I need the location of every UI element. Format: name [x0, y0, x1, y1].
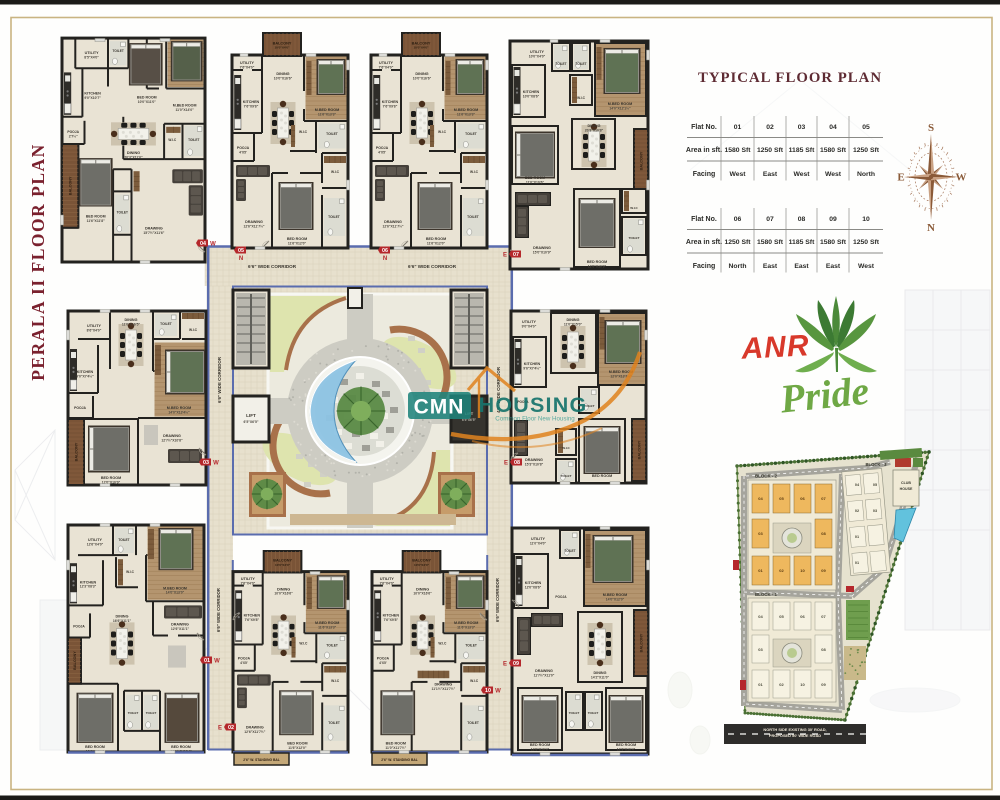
svg-text:06: 06 — [800, 614, 805, 619]
svg-text:TOILET: TOILET — [465, 132, 477, 136]
svg-text:01: 01 — [855, 535, 859, 539]
svg-text:M.BED ROOM: M.BED ROOM — [315, 108, 339, 112]
svg-text:05: 05 — [779, 614, 784, 619]
svg-text:9'0"X4'0": 9'0"X4'0" — [522, 324, 537, 328]
svg-text:BALCONY: BALCONY — [73, 651, 77, 670]
svg-text:03: 03 — [758, 647, 763, 652]
svg-text:W: W — [495, 689, 501, 695]
svg-text:12'6"X11'7½": 12'6"X11'7½" — [243, 224, 264, 228]
svg-text:UTILITY: UTILITY — [241, 577, 255, 581]
svg-text:03: 03 — [798, 124, 806, 131]
svg-text:9'6"X7'4½": 9'6"X7'4½" — [523, 366, 541, 370]
svg-text:TOILET: TOILET — [561, 474, 572, 478]
svg-text:TOILET: TOILET — [629, 236, 640, 240]
svg-text:BED ROOM: BED ROOM — [426, 237, 446, 241]
svg-text:BALCONY: BALCONY — [640, 633, 644, 652]
svg-text:6’6" WIDE CORRIDOR: 6’6" WIDE CORRIDOR — [408, 264, 457, 269]
svg-text:14'0"X13'0": 14'0"X13'0" — [166, 591, 185, 595]
svg-text:02: 02 — [855, 509, 859, 513]
svg-text:PERALA II FLOOR PLAN: PERALA II FLOOR PLAN — [28, 143, 48, 381]
svg-text:03: 03 — [203, 460, 209, 466]
svg-text:TOILET: TOILET — [467, 721, 479, 725]
svg-text:BLOCK - 1: BLOCK - 1 — [755, 592, 778, 597]
svg-text:4'X5': 4'X5' — [379, 661, 387, 665]
svg-text:11'0"X16'5": 11'0"X16'5" — [122, 322, 141, 326]
svg-text:09: 09 — [513, 661, 519, 667]
svg-text:6’6" WIDE CORRIDOR: 6’6" WIDE CORRIDOR — [216, 588, 221, 632]
svg-text:DRAWING: DRAWING — [163, 434, 181, 438]
svg-text:E: E — [897, 172, 904, 184]
svg-text:E: E — [504, 461, 508, 467]
svg-text:W.I.C: W.I.C — [470, 170, 479, 174]
svg-text:Facing: Facing — [693, 263, 716, 270]
svg-text:TOILET: TOILET — [113, 49, 124, 53]
svg-text:4'X5': 4'X5' — [240, 661, 248, 665]
svg-text:14'0"X12'0": 14'0"X12'0" — [606, 597, 625, 601]
svg-text:12'3"X10'4": 12'3"X10'4" — [617, 747, 636, 751]
svg-text:BLOCK - 2: BLOCK - 2 — [755, 474, 778, 479]
svg-text:06: 06 — [734, 216, 742, 223]
svg-text:01: 01 — [734, 124, 742, 131]
svg-text:1580 Sft: 1580 Sft — [724, 147, 751, 154]
svg-text:TOILET: TOILET — [575, 62, 586, 66]
svg-text:DINING: DINING — [127, 151, 140, 155]
svg-text:BED ROOM: BED ROOM — [587, 260, 607, 264]
svg-text:M.BED ROOM: M.BED ROOM — [173, 104, 197, 108]
svg-text:11'6"X13'3": 11'6"X13'3" — [318, 112, 337, 116]
svg-text:6’6" WIDE CORRIDOR: 6’6" WIDE CORRIDOR — [495, 578, 500, 622]
svg-text:UTILITY: UTILITY — [87, 324, 101, 328]
svg-text:04: 04 — [758, 614, 763, 619]
svg-text:BED ROOM: BED ROOM — [287, 237, 307, 241]
svg-text:10'0"X16'6": 10'0"X16'6" — [413, 76, 432, 80]
svg-text:N: N — [927, 222, 935, 234]
svg-text:10'0"X8'6": 10'0"X8'6" — [523, 94, 540, 98]
svg-text:1250 Sft: 1250 Sft — [853, 239, 880, 246]
svg-text:POOJA: POOJA — [376, 146, 389, 150]
svg-text:TOILET: TOILET — [467, 215, 479, 219]
svg-text:KITCHEN: KITCHEN — [77, 370, 94, 374]
svg-text:KITCHEN: KITCHEN — [383, 613, 400, 617]
svg-text:E: E — [218, 726, 222, 732]
svg-text:06: 06 — [800, 496, 805, 501]
svg-text:10'0"X4'0": 10'0"X4'0" — [414, 563, 430, 567]
svg-text:DINING: DINING — [594, 671, 607, 675]
svg-text:2’6" W. STANDING BAL: 2’6" W. STANDING BAL — [243, 758, 280, 762]
svg-text:KITCHEN: KITCHEN — [244, 613, 261, 617]
svg-text:12'7½"X10'8": 12'7½"X10'8" — [161, 438, 183, 442]
svg-text:20'3"X10'8": 20'3"X10'8" — [585, 128, 604, 132]
svg-text:W.I.C: W.I.C — [577, 96, 585, 100]
svg-text:UTILITY: UTILITY — [379, 61, 393, 65]
svg-text:DINING: DINING — [588, 124, 601, 128]
svg-text:09: 09 — [821, 682, 826, 687]
svg-text:KITCHEN: KITCHEN — [523, 90, 540, 94]
svg-text:DRAWING: DRAWING — [533, 246, 551, 250]
svg-text:UTILITY: UTILITY — [531, 537, 545, 541]
svg-text:TYPICAL FLOOR PLAN: TYPICAL FLOOR PLAN — [698, 70, 882, 86]
svg-text:W: W — [214, 659, 220, 665]
svg-text:DINING: DINING — [567, 318, 580, 322]
svg-text:W: W — [210, 242, 216, 248]
svg-text:12'6"X11'7½": 12'6"X11'7½" — [244, 730, 265, 734]
svg-text:07: 07 — [766, 216, 774, 223]
svg-text:06: 06 — [382, 248, 388, 254]
svg-text:TOILET: TOILET — [326, 643, 338, 647]
svg-text:BED ROOM: BED ROOM — [287, 742, 307, 746]
svg-text:02: 02 — [779, 568, 784, 573]
svg-text:1185 Sft: 1185 Sft — [789, 147, 815, 154]
svg-text:DINING: DINING — [116, 614, 129, 618]
svg-text:BED ROOM: BED ROOM — [386, 742, 406, 746]
svg-text:01: 01 — [758, 568, 763, 573]
svg-text:11'0"X10'6": 11'0"X10'6" — [526, 180, 545, 184]
svg-text:East: East — [794, 263, 809, 270]
svg-text:M.BED ROOM: M.BED ROOM — [603, 593, 627, 597]
svg-text:02: 02 — [766, 124, 774, 131]
svg-text:W.I.C: W.I.C — [126, 570, 134, 574]
svg-text:KITCHEN: KITCHEN — [524, 362, 541, 366]
svg-text:07: 07 — [513, 252, 519, 258]
svg-text:KITCHEN: KITCHEN — [382, 100, 399, 104]
svg-text:BED ROOM: BED ROOM — [616, 743, 636, 747]
svg-text:DINING: DINING — [416, 587, 429, 591]
svg-text:POOJA: POOJA — [67, 130, 79, 134]
svg-text:08: 08 — [514, 460, 520, 466]
svg-text:East: East — [763, 171, 778, 178]
svg-text:10'0"X4'0": 10'0"X4'0" — [275, 563, 291, 567]
svg-text:W.I.C: W.I.C — [189, 328, 198, 332]
svg-text:POOJA: POOJA — [238, 656, 251, 660]
svg-text:TOILET: TOILET — [146, 711, 157, 715]
svg-text:N: N — [239, 256, 243, 262]
svg-text:TOILET: TOILET — [328, 721, 340, 725]
svg-text:West: West — [793, 171, 810, 178]
svg-text:TOILET: TOILET — [188, 138, 199, 142]
svg-text:Flat No.: Flat No. — [691, 124, 717, 131]
svg-text:6’6" WIDE CORRIDOR: 6’6" WIDE CORRIDOR — [248, 264, 297, 269]
svg-text:12'0"X10'9": 12'0"X10'9" — [588, 264, 607, 268]
svg-text:BED ROOM: BED ROOM — [525, 176, 545, 180]
svg-text:14'0"X12'1½": 14'0"X12'1½" — [609, 106, 631, 110]
svg-text:DRAWING: DRAWING — [525, 458, 543, 462]
svg-text:04: 04 — [200, 241, 206, 247]
svg-text:08: 08 — [821, 647, 826, 652]
svg-text:DRAWING: DRAWING — [434, 683, 452, 687]
svg-text:West: West — [729, 171, 746, 178]
svg-text:UTILITY: UTILITY — [240, 61, 254, 65]
svg-text:2'7½": 2'7½" — [69, 134, 78, 138]
svg-text:01: 01 — [758, 682, 763, 687]
svg-text:BALCONY: BALCONY — [640, 151, 644, 170]
svg-text:TOILET: TOILET — [160, 322, 172, 326]
svg-text:TOILET: TOILET — [465, 643, 477, 647]
svg-text:DINING: DINING — [276, 72, 289, 76]
svg-text:W.I.C: W.I.C — [299, 642, 308, 646]
svg-text:UTILITY: UTILITY — [522, 320, 536, 324]
svg-text:BED ROOM: BED ROOM — [171, 745, 191, 749]
svg-text:1250 Sft: 1250 Sft — [757, 147, 784, 154]
svg-text:01: 01 — [855, 561, 859, 565]
svg-text:BALCONY: BALCONY — [75, 442, 79, 461]
svg-text:E: E — [503, 253, 507, 259]
svg-text:M.BED ROOM: M.BED ROOM — [315, 621, 339, 625]
svg-text:11'1½"X11'7½": 11'1½"X11'7½" — [432, 687, 456, 691]
svg-text:1185 Sft: 1185 Sft — [789, 239, 815, 246]
svg-text:10'0"X16'6": 10'0"X16'6" — [413, 592, 432, 596]
svg-text:05: 05 — [779, 496, 784, 501]
svg-text:DRAWING: DRAWING — [384, 220, 402, 224]
svg-text:W.I.C: W.I.C — [331, 170, 340, 174]
svg-text:12'6"X11'1": 12'6"X11'1" — [171, 627, 190, 631]
svg-text:BED ROOM: BED ROOM — [137, 96, 157, 100]
svg-text:11'6"X12'0": 11'6"X12'0" — [427, 241, 446, 245]
svg-text:BED ROOM: BED ROOM — [86, 215, 106, 219]
svg-text:6’6" WIDE CORRIDOR: 6’6" WIDE CORRIDOR — [217, 356, 222, 403]
svg-text:W.I.C: W.I.C — [168, 138, 176, 142]
svg-text:03: 03 — [873, 509, 877, 513]
svg-text:POOJA: POOJA — [377, 656, 390, 660]
svg-text:CMN: CMN — [414, 396, 465, 419]
svg-text:16'6"X11'1": 16'6"X11'1" — [113, 619, 132, 623]
svg-text:7'6"X9'8": 7'6"X9'8" — [383, 104, 398, 108]
svg-text:KITCHEN: KITCHEN — [84, 92, 101, 96]
svg-text:7'6"X4'0": 7'6"X4'0" — [241, 581, 256, 585]
svg-text:14'0"X13'4½": 14'0"X13'4½" — [168, 410, 190, 414]
svg-text:10'0"X4'0": 10'0"X4'0" — [413, 46, 429, 50]
svg-text:UTILITY: UTILITY — [380, 577, 394, 581]
svg-text:KITCHEN: KITCHEN — [525, 581, 542, 585]
svg-text:W.I.C: W.I.C — [630, 206, 638, 210]
svg-text:15'0"X10'9": 15'0"X10'9" — [533, 250, 552, 254]
svg-text:12'0"X10'4": 12'0"X10'4" — [531, 747, 550, 751]
svg-text:UTILITY: UTILITY — [85, 51, 99, 55]
svg-text:BED ROOM: BED ROOM — [85, 745, 105, 749]
svg-text:TOILET: TOILET — [118, 538, 129, 542]
svg-text:07: 07 — [821, 614, 826, 619]
svg-text:11'6"X13'3": 11'6"X13'3" — [318, 625, 337, 629]
svg-text:12'0"X8'6": 12'0"X8'6" — [525, 585, 542, 589]
svg-text:4'X5': 4'X5' — [378, 150, 386, 154]
svg-text:01: 01 — [204, 658, 210, 664]
svg-text:DRAWING: DRAWING — [145, 227, 163, 231]
svg-text:04: 04 — [758, 496, 763, 501]
svg-text:LIFT: LIFT — [246, 413, 256, 418]
svg-text:M.BED ROOM: M.BED ROOM — [608, 102, 632, 106]
svg-text:03: 03 — [758, 531, 763, 536]
svg-text:11'0"X14'0": 11'0"X14'0" — [175, 108, 194, 112]
svg-text:12'6"X11'7½": 12'6"X11'7½" — [382, 224, 403, 228]
svg-text:POOJA: POOJA — [237, 146, 250, 150]
svg-text:02: 02 — [228, 725, 234, 731]
svg-text:11'0"X4'0": 11'0"X4'0" — [530, 541, 547, 545]
svg-text:BED ROOM: BED ROOM — [592, 474, 612, 478]
svg-text:BED ROOM: BED ROOM — [530, 743, 550, 747]
svg-text:7'6"X9'8": 7'6"X9'8" — [244, 104, 259, 108]
svg-text:PROPOSED 50' WIDE ROAD: PROPOSED 50' WIDE ROAD — [769, 733, 821, 738]
svg-text:10: 10 — [862, 216, 870, 223]
svg-text:HOUSING: HOUSING — [479, 393, 588, 417]
svg-text:DRAWING: DRAWING — [246, 726, 264, 730]
svg-text:North: North — [857, 171, 875, 178]
svg-text:7'6"X9'8": 7'6"X9'8" — [244, 618, 259, 622]
svg-text:12'3"X8'3": 12'3"X8'3" — [80, 585, 97, 589]
svg-text:04: 04 — [829, 124, 837, 131]
svg-text:Flat No.: Flat No. — [691, 216, 717, 223]
svg-text:M.BED ROOM: M.BED ROOM — [167, 406, 191, 410]
svg-text:10'0"X16'6": 10'0"X16'6" — [274, 76, 293, 80]
svg-text:BED ROOM: BED ROOM — [101, 476, 121, 480]
svg-text:W.I.C: W.I.C — [470, 679, 479, 683]
svg-text:10'0"X11'0": 10'0"X11'0" — [138, 100, 157, 104]
svg-text:East: East — [826, 263, 841, 270]
svg-text:TOILET: TOILET — [588, 711, 599, 715]
svg-text:Area in sft.: Area in sft. — [686, 239, 722, 246]
svg-text:M.BED ROOM: M.BED ROOM — [454, 108, 478, 112]
svg-text:9'0"X10'7": 9'0"X10'7" — [84, 96, 101, 100]
svg-text:BALCONY: BALCONY — [638, 440, 642, 459]
svg-text:West: West — [825, 171, 842, 178]
svg-text:W.I.C: W.I.C — [331, 679, 340, 683]
svg-text:11'0"X15'0": 11'0"X15'0" — [564, 322, 583, 326]
svg-text:11'6"X12'0": 11'6"X12'0" — [288, 746, 307, 750]
svg-text:1250 Sft: 1250 Sft — [724, 239, 751, 246]
svg-text:W.I.C: W.I.C — [299, 130, 308, 134]
svg-text:11'0"X11'7½": 11'0"X11'7½" — [385, 746, 406, 750]
svg-text:11'6"X13'3": 11'6"X13'3" — [457, 625, 476, 629]
svg-text:East: East — [763, 263, 778, 270]
svg-text:05: 05 — [873, 483, 877, 487]
svg-text:ANR: ANR — [740, 329, 811, 366]
svg-text:6’5"X6’5": 6’5"X6’5" — [244, 420, 259, 424]
svg-text:M.BED ROOM: M.BED ROOM — [163, 586, 187, 590]
svg-text:7'6"X4'0": 7'6"X4'0" — [380, 581, 395, 585]
svg-text:KITCHEN: KITCHEN — [80, 580, 97, 584]
svg-text:7'6"X4'0": 7'6"X4'0" — [240, 65, 255, 69]
svg-text:15'7½"X11'6": 15'7½"X11'6" — [143, 231, 164, 235]
svg-text:W: W — [956, 172, 967, 184]
svg-text:05: 05 — [238, 248, 244, 254]
svg-text:9'0"X7'4½": 9'0"X7'4½" — [76, 374, 94, 378]
svg-text:4'X5': 4'X5' — [239, 150, 247, 154]
svg-text:DINING: DINING — [125, 318, 138, 322]
svg-text:07: 07 — [821, 496, 826, 501]
svg-text:CLUB: CLUB — [901, 481, 911, 485]
svg-text:1580 Sft: 1580 Sft — [757, 239, 784, 246]
svg-text:10'0"X16'6": 10'0"X16'6" — [274, 592, 293, 596]
svg-text:2’6" W. STANDING BAL: 2’6" W. STANDING BAL — [381, 758, 418, 762]
svg-text:E: E — [503, 662, 507, 668]
svg-text:KITCHEN: KITCHEN — [243, 100, 260, 104]
svg-text:UTILITY: UTILITY — [530, 50, 544, 54]
svg-text:09: 09 — [829, 216, 837, 223]
svg-text:7'6"X4'0": 7'6"X4'0" — [379, 65, 394, 69]
svg-text:North: North — [728, 263, 746, 270]
svg-text:Area in sft.: Area in sft. — [686, 147, 722, 154]
svg-text:TOILET: TOILET — [569, 711, 580, 715]
svg-text:W.I.C: W.I.C — [438, 642, 447, 646]
svg-text:15'3"X10'8": 15'3"X10'8" — [525, 462, 544, 466]
svg-text:20'3"X11'0": 20'3"X11'0" — [124, 156, 143, 160]
svg-text:W.I.C: W.I.C — [438, 130, 447, 134]
svg-text:TOILET: TOILET — [117, 211, 128, 215]
svg-text:S: S — [928, 122, 934, 134]
svg-text:UTILITY: UTILITY — [88, 538, 102, 542]
svg-text:7'6"X9'8": 7'6"X9'8" — [383, 618, 398, 622]
svg-text:1580 Sft: 1580 Sft — [820, 147, 847, 154]
svg-text:DRAWING: DRAWING — [171, 622, 189, 626]
svg-text:11'6"X11'8": 11'6"X11'8" — [87, 219, 105, 223]
svg-text:TOILET: TOILET — [555, 62, 566, 66]
svg-text:05: 05 — [862, 124, 870, 131]
svg-text:10'0"X4'0": 10'0"X4'0" — [529, 54, 546, 58]
svg-text:HOUSE: HOUSE — [900, 487, 913, 491]
svg-text:POOJA: POOJA — [74, 406, 86, 410]
svg-text:8'6"X4'0": 8'6"X4'0" — [87, 328, 102, 332]
svg-text:N: N — [383, 256, 387, 262]
svg-text:10'0"X4'0": 10'0"X4'0" — [274, 46, 290, 50]
svg-text:11'6"X12'0": 11'6"X12'0" — [288, 241, 307, 245]
svg-text:West: West — [858, 263, 875, 270]
svg-text:11'7½"X11'0": 11'7½"X11'0" — [534, 673, 555, 677]
svg-text:POOJA: POOJA — [555, 595, 567, 599]
svg-text:11'6"X13'3": 11'6"X13'3" — [457, 112, 476, 116]
svg-text:1250 Sft: 1250 Sft — [853, 147, 880, 154]
svg-text:W.I.C: W.I.C — [562, 446, 570, 450]
svg-text:02: 02 — [779, 682, 784, 687]
svg-text:Pride: Pride — [777, 368, 871, 422]
svg-text:Common Floor New Housing: Common Floor New Housing — [495, 416, 575, 423]
svg-text:NORTH SIDE EXISTING 30' ROAD,: NORTH SIDE EXISTING 30' ROAD, — [763, 727, 826, 732]
svg-text:1580 Sft: 1580 Sft — [820, 239, 847, 246]
svg-text:POOJA: POOJA — [73, 625, 85, 629]
svg-text:BLOCK - 3: BLOCK - 3 — [866, 462, 888, 467]
svg-text:12'6"X4'0": 12'6"X4'0" — [87, 543, 104, 547]
svg-text:Facing: Facing — [693, 171, 716, 178]
svg-text:10: 10 — [800, 568, 805, 573]
svg-text:10: 10 — [485, 688, 491, 694]
svg-text:W: W — [213, 461, 219, 467]
svg-text:DINING: DINING — [277, 587, 290, 591]
svg-text:TOILET: TOILET — [128, 711, 139, 715]
svg-text:TOILET: TOILET — [564, 549, 575, 553]
svg-text:10: 10 — [800, 682, 805, 687]
svg-text:09: 09 — [821, 568, 826, 573]
svg-text:BALCONY: BALCONY — [69, 176, 73, 195]
svg-text:TOILET: TOILET — [328, 215, 340, 219]
svg-text:14'2"X11'0": 14'2"X11'0" — [591, 675, 610, 679]
svg-text:8'5"X4'0": 8'5"X4'0" — [84, 56, 99, 60]
svg-text:TOILET: TOILET — [326, 132, 338, 136]
svg-text:DINING: DINING — [415, 72, 428, 76]
svg-text:DRAWING: DRAWING — [245, 220, 263, 224]
svg-text:M.BED ROOM: M.BED ROOM — [454, 621, 478, 625]
svg-text:08: 08 — [798, 216, 806, 223]
svg-text:08: 08 — [821, 531, 826, 536]
svg-text:DRAWING: DRAWING — [535, 669, 553, 673]
